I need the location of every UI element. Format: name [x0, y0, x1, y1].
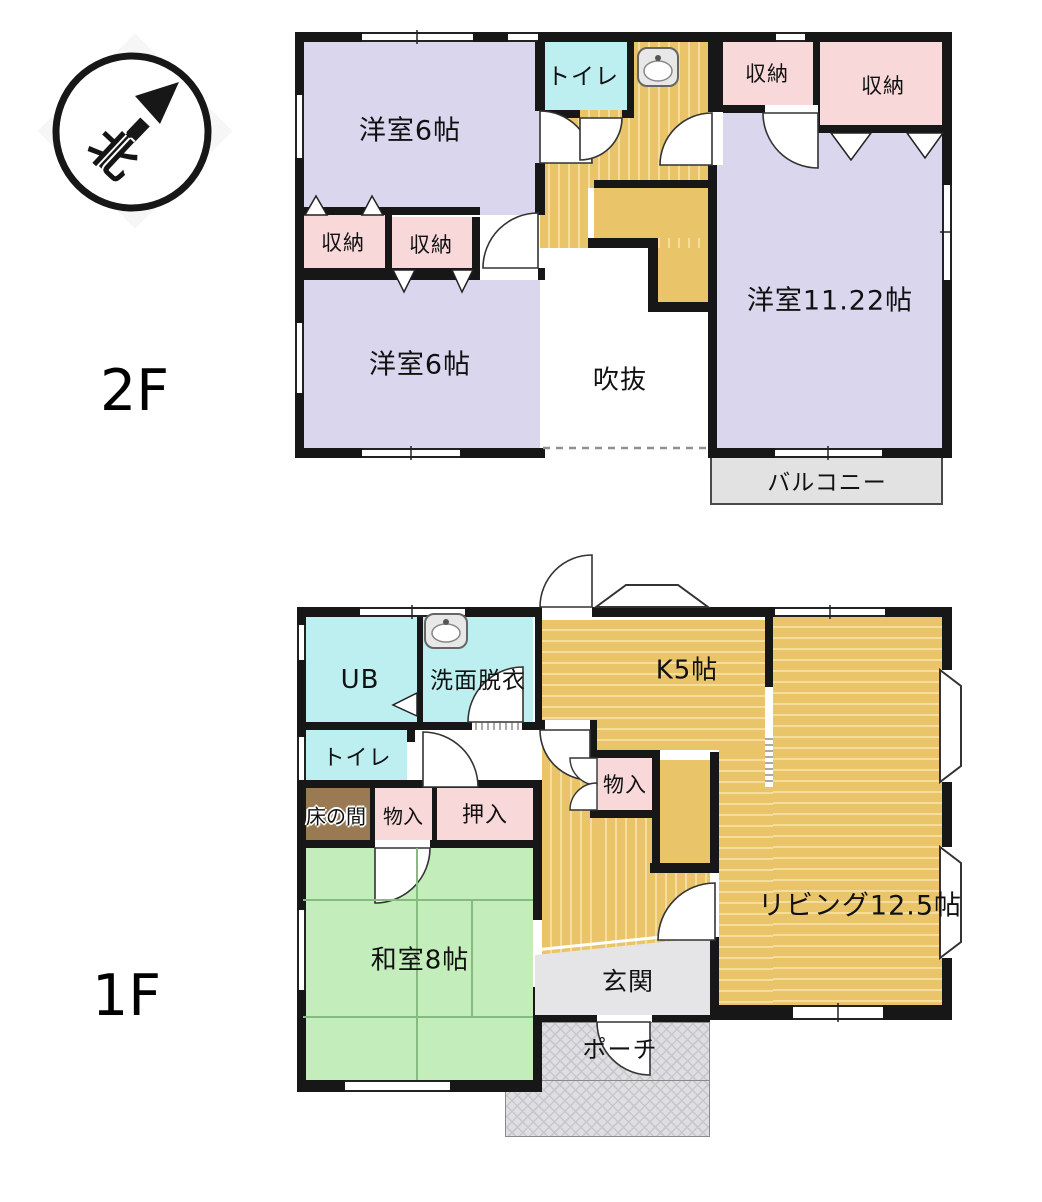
bay-window-opening — [940, 670, 952, 782]
room-label: 吹抜 — [593, 360, 647, 397]
wall — [535, 607, 542, 730]
floor-2f-plan: 洋室6帖 トイレ 収納 収納 洋室11.22帖 収納 収納 洋室6帖 吹抜 バル… — [295, 28, 975, 528]
wall — [297, 607, 306, 1092]
window — [508, 32, 538, 42]
door-opening — [765, 687, 773, 787]
room-western-large — [717, 105, 942, 448]
floorplan-page: { "compass": { "north": "北" }, "floors":… — [0, 0, 1042, 1202]
wall — [652, 750, 660, 863]
room-living-b — [719, 750, 773, 1005]
front-door-opening — [597, 1015, 652, 1022]
wall — [430, 840, 533, 848]
room-label: 押入 — [462, 797, 508, 829]
wall — [522, 722, 535, 730]
door-arc — [483, 213, 538, 268]
door-opening — [588, 188, 594, 238]
door-opening — [545, 720, 590, 730]
wall — [650, 863, 719, 873]
room-label: 物入 — [383, 801, 423, 830]
wall — [588, 238, 658, 248]
room-label: 洗面脱衣 — [430, 661, 526, 695]
window — [295, 323, 304, 393]
floor-1f-plan: UB 洗面脱衣 K5帖 トイレ 床の間 物入 押入 物入 和室8帖 リビング12… — [295, 598, 985, 1158]
wall — [594, 180, 708, 188]
wall — [370, 788, 375, 840]
room-label: 玄関 — [602, 962, 654, 998]
room-label: UB — [341, 665, 380, 695]
window — [942, 185, 952, 280]
floor-1f-label: 1F — [92, 963, 161, 1029]
wall — [407, 730, 415, 742]
wall — [813, 42, 820, 133]
stair-lower-2f — [658, 248, 708, 302]
wall — [385, 215, 392, 270]
room-label: 和室8帖 — [371, 940, 470, 977]
wall — [297, 722, 472, 730]
floor-2f-label: 2F — [100, 358, 169, 424]
room-label: 収納 — [745, 58, 789, 88]
hall-nook — [660, 760, 710, 863]
room-label: 洋室6帖 — [369, 343, 471, 382]
wall — [417, 612, 423, 722]
room-label: K5帖 — [656, 650, 719, 687]
door-opening — [542, 607, 592, 617]
window — [345, 1080, 450, 1092]
window — [362, 32, 473, 42]
door-opening — [765, 105, 818, 113]
door-arc — [540, 555, 592, 607]
window — [297, 910, 306, 990]
wall — [295, 207, 480, 215]
room-label: ポーチ — [583, 1030, 658, 1065]
window — [295, 95, 304, 158]
compass-diamond — [37, 33, 232, 228]
window — [362, 448, 460, 458]
wall — [432, 788, 437, 840]
window — [776, 32, 805, 42]
room-label: バルコニー — [767, 463, 887, 497]
bay-window-top — [596, 585, 708, 607]
wall — [590, 810, 660, 818]
room-label: トイレ — [547, 57, 619, 91]
room-label: 物入 — [603, 769, 647, 799]
hall-1f-a — [542, 730, 597, 955]
room-label: 収納 — [409, 229, 453, 259]
wall — [297, 780, 535, 788]
room-label: 床の間 — [306, 801, 366, 830]
window — [297, 625, 306, 660]
room-label: 収納 — [321, 227, 365, 257]
wall — [708, 42, 723, 112]
wall — [535, 163, 545, 215]
window — [297, 737, 306, 780]
wall — [820, 125, 942, 133]
wall — [540, 110, 580, 118]
compass: 北 — [45, 42, 223, 220]
window — [775, 607, 885, 617]
door-opening — [708, 112, 723, 165]
door-opening — [472, 722, 522, 730]
wall — [535, 720, 545, 730]
room-label: 洋室6帖 — [359, 109, 461, 148]
window — [775, 448, 882, 458]
wall — [648, 248, 658, 302]
wall — [295, 268, 478, 280]
wall — [538, 268, 545, 280]
wall — [590, 720, 597, 758]
door-opening — [533, 920, 542, 987]
wall — [710, 752, 719, 873]
wall — [297, 840, 375, 848]
wall — [710, 937, 719, 1013]
room-living-a — [773, 617, 942, 1005]
window — [360, 607, 465, 617]
wall — [597, 750, 660, 758]
wall — [942, 607, 952, 1020]
room-label: 洋室11.22帖 — [747, 279, 913, 318]
window — [793, 1005, 883, 1020]
room-label: トイレ — [322, 740, 391, 772]
wall — [627, 42, 634, 118]
room-label: リビング12.5帖 — [758, 884, 962, 923]
wall — [535, 32, 545, 111]
wall — [765, 607, 773, 687]
stair-upper-2f — [594, 188, 708, 238]
wall — [648, 302, 712, 312]
room-label: 収納 — [861, 70, 905, 100]
door-arc — [423, 732, 478, 787]
